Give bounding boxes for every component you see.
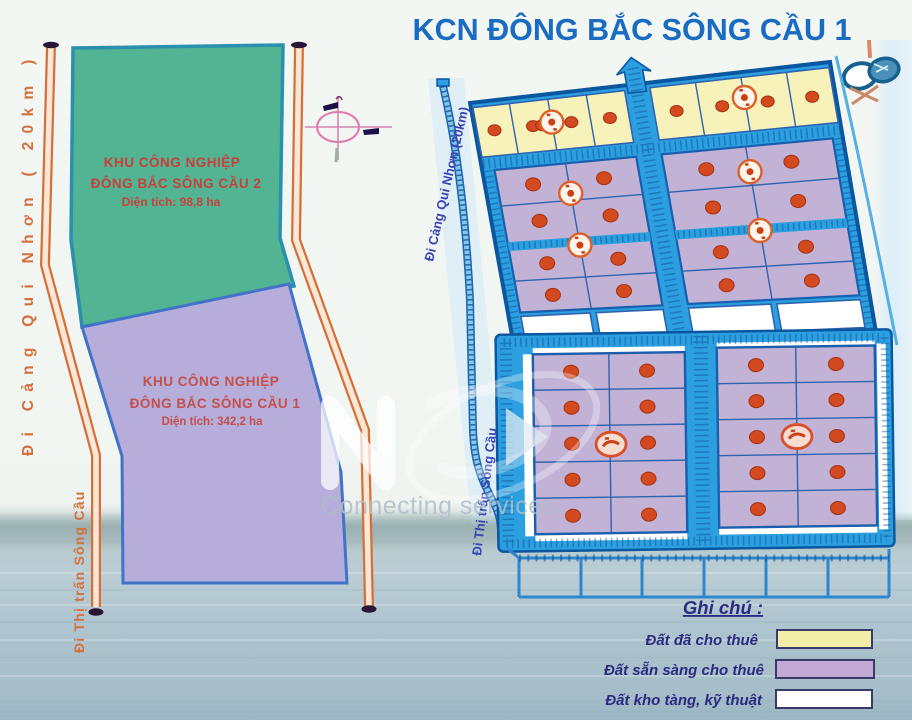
svg-text:KHU CÔNG NGHIỆP: KHU CÔNG NGHIỆP — [143, 374, 280, 389]
svg-text:Đất kho tàng, kỹ thuật: Đất kho tàng, kỹ thuật — [605, 692, 763, 709]
svg-text:Đi Cảng Qui Nhơn ( 20km ): Đi Cảng Qui Nhơn ( 20km ) — [20, 51, 37, 456]
svg-text:ĐÔNG BẮC SÔNG CẦU 1: ĐÔNG BẮC SÔNG CẦU 1 — [130, 396, 301, 411]
svg-text:Đất đã cho thuê: Đất đã cho thuê — [645, 632, 758, 649]
svg-text:Connecting services: Connecting services — [321, 492, 556, 520]
svg-text:KHU CÔNG NGHIỆP: KHU CÔNG NGHIỆP — [104, 155, 241, 170]
svg-text:KCN ĐÔNG BẮC SÔNG CẦU 1: KCN ĐÔNG BẮC SÔNG CẦU 1 — [413, 11, 852, 47]
svg-text:Ghi chú :: Ghi chú : — [683, 597, 763, 618]
svg-text:Diện tích: 342,2 ha: Diện tích: 342,2 ha — [162, 416, 264, 428]
svg-text:Diện tích: 98,8 ha: Diện tích: 98,8 ha — [122, 195, 221, 209]
svg-text:ĐÔNG BẮC SÔNG CẦU 2: ĐÔNG BẮC SÔNG CẦU 2 — [91, 176, 262, 191]
svg-text:Đi Thị trấn Sông Cầu: Đi Thị trấn Sông Cầu — [71, 491, 87, 653]
svg-text:Đất sẵn sàng cho thuê: Đất sẵn sàng cho thuê — [604, 662, 764, 679]
